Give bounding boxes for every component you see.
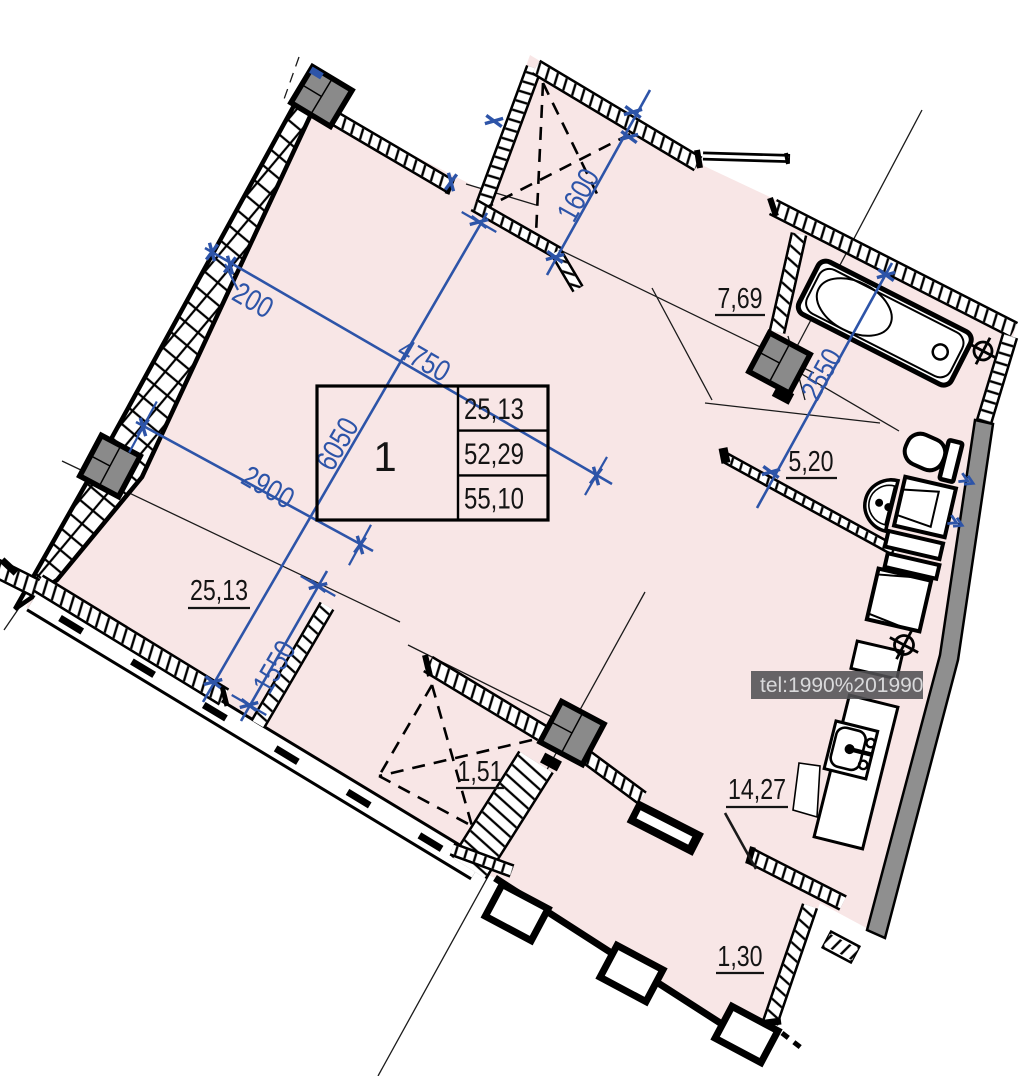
svg-text:1: 1 [373, 433, 396, 480]
svg-text:52,29: 52,29 [464, 436, 524, 470]
svg-text:25,13: 25,13 [464, 391, 524, 425]
svg-text:14,27: 14,27 [728, 772, 786, 805]
svg-text:7,69: 7,69 [717, 281, 762, 314]
svg-text:55,10: 55,10 [464, 481, 524, 515]
svg-text:1,51: 1,51 [457, 754, 502, 787]
svg-text:25,13: 25,13 [190, 573, 248, 606]
svg-text:5,20: 5,20 [788, 444, 833, 477]
svg-text:1,30: 1,30 [717, 939, 762, 972]
